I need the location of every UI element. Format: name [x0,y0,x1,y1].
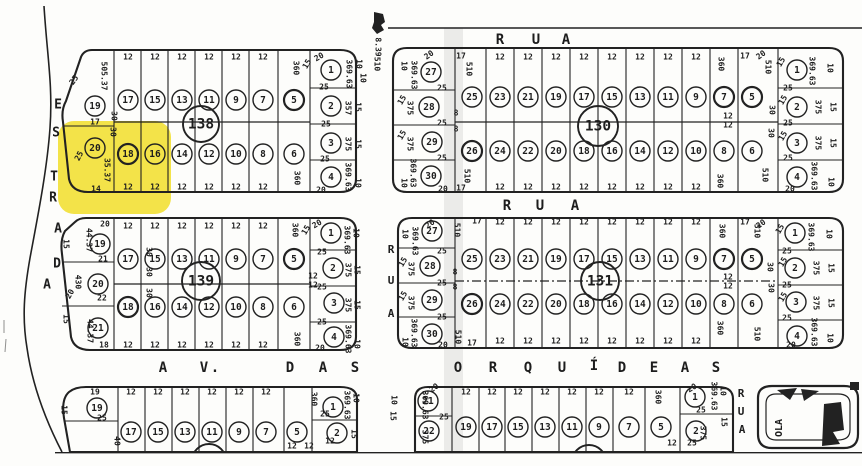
lot-number: 24 [494,146,506,157]
lot-number: 15 [152,427,164,438]
lot-number: 19 [550,254,562,265]
lot-number: 25 [466,92,478,103]
lot-number: 13 [176,254,188,265]
frontage-dim: 12 [495,53,505,62]
frontage-dim: 12 [204,222,214,231]
dimension-label: 17 [456,184,466,193]
dimension-label: 15 [829,138,838,148]
dimension-label: 375 [344,298,353,313]
street-name-estrada: A [43,278,51,293]
dimension-label: 12 [308,272,318,281]
frontage-dim: 12 [204,53,214,62]
frontage-dim: 12 [126,388,136,397]
lot-number: 11 [203,95,215,106]
street-name-av-das-orquideas: A [159,360,168,376]
dimension-label: 30 [766,262,775,272]
lot-number: 1 [794,65,800,76]
dimension-label: 10 [826,63,835,73]
frontage-dim: 12 [231,341,241,350]
dimension-label: 505.37 [100,62,109,91]
lot-number: 16 [149,302,161,313]
street-name-av-das-orquideas: D [286,360,294,376]
lot-number: 13 [539,422,551,433]
lot-number: 16 [606,299,618,310]
dimension-label: 360 [310,392,319,407]
street-name-av-das-orquideas: V [200,360,209,376]
dimension-label: 375 [812,261,821,276]
street-name-rua-vertical-upper: U [388,274,395,287]
street-name-rua-vertical-lower: R [738,387,745,400]
dimension-label: 510 [463,169,472,184]
frontage-dim: 12 [523,183,533,192]
dimension-label: 22 [97,294,107,303]
dimension-label: 15 [353,300,362,310]
dimension-label: 10 [400,178,409,188]
dimension-label: 8 [454,109,459,118]
lot-number: 17 [578,254,589,265]
street-name-av-das-orquideas: S [351,360,359,376]
lot-number: 10 [690,146,702,157]
dimension-label: 25 [782,247,792,256]
lot-number: 9 [236,427,242,438]
lot-number: 19 [460,422,472,433]
dimension-label: 25 [97,414,107,423]
dimension-label: 369.63 [710,382,719,411]
dimension-label: 25 [783,154,793,163]
dimension-label: 21 [98,255,108,264]
dimension-label: 375 [344,263,353,278]
dimension-label: 17 [456,52,466,61]
frontage-dim: 12 [204,341,214,350]
dimension-label: 20 [315,344,325,353]
lot-number: 5 [294,427,300,438]
lot-number: 20 [89,143,101,154]
dimension-label: 510 [373,57,382,72]
frontage-dim: 12 [523,218,533,227]
lot-number: 7 [721,92,727,103]
lot-number: 23 [494,254,506,265]
frontage-dim: 12 [607,218,617,227]
frontage-dim: 12 [691,337,701,346]
dimension-label: 369.63 [344,325,353,354]
frontage-dim: 12 [663,53,673,62]
dimension-label: 15 [389,411,398,421]
street-name-estrada: E [54,98,62,113]
dimension-label: 430 [74,275,83,290]
lot-number: 28 [424,261,436,272]
dimension-label: 10 [401,337,410,347]
street-name-rua-vertical-upper: A [388,307,395,320]
dimension-label: 10 [352,393,361,403]
frontage-dim: 12 [204,183,214,192]
lot-number: 11 [662,254,674,265]
lot-number: 11 [566,422,578,433]
lot-number: 20 [550,299,562,310]
dimension-label: 369.63 [344,163,353,192]
lot-number: 7 [721,254,727,265]
street-name-rua-top: U [532,32,540,48]
frontage-dim: 12 [150,183,160,192]
frontage-dim: 12 [594,388,604,397]
plat-map: 8.39121212121212121212121212171513119751… [0,0,862,466]
lot-number: 16 [606,146,618,157]
dimension-label: 20 [316,186,326,195]
dimension-label: 12 [308,281,318,290]
dimension-label: 12 [723,121,733,130]
dimension-label: 25 [437,313,447,322]
street-name-rua-middle: R [503,198,512,214]
lot-number: 12 [662,299,673,310]
dimension-label: 25 [687,439,697,448]
lot-number: 4 [331,332,337,343]
street-name-rua-middle: A [571,198,580,214]
dimension-label: 10 [355,59,364,69]
lot-number: 5 [291,254,297,265]
lot-number: 17 [125,427,136,438]
dimension-label: 17 [90,118,100,127]
lot-number: 2 [334,428,340,439]
frontage-dim: 12 [579,218,589,227]
dimension-label: 15 [353,265,362,275]
lot-number: 10 [230,302,242,313]
dimension-label: 12 [723,112,733,121]
street-name-av-das-orquideas: U [558,360,566,376]
street-name-av-das-orquideas: A [681,360,690,376]
dimension-label: 360 [717,57,726,72]
lot-number: 12 [203,149,214,160]
street-name-estrada: S [52,126,60,141]
lot-number: 9 [233,254,239,265]
frontage-dim: 12 [231,222,241,231]
frontage-dim: 12 [663,183,673,192]
lot-number: 30 [425,171,437,182]
dimension-label: 375 [407,296,416,311]
lot-number: 1 [328,228,334,239]
dimension-label: 369.63 [409,159,418,188]
frontage-dim: 12 [487,388,497,397]
lot-number: 3 [793,297,799,308]
street-name-av-das-orquideas: Q [524,360,532,376]
dimension-label: 25 [437,119,447,128]
frontage-dim: 12 [207,388,217,397]
dimension-label: 17 [467,339,477,348]
dimension-label: 25 [439,413,449,422]
dimension-label: 25 [317,318,327,327]
lot-number: 20 [550,146,562,157]
block-number: 138 [188,117,214,133]
dimension-label: 30 [768,105,777,115]
lot-number: 18 [122,302,134,313]
lot-number: 29 [426,295,438,306]
lot-number: 8 [260,302,266,313]
street-name-av-das-orquideas: O [454,360,462,376]
lot-number: 2 [794,102,800,113]
street-name-estrada: A [54,222,62,237]
lot-number: 19 [94,239,106,250]
frontage-dim: 12 [691,218,701,227]
dimension-label: 360 [718,224,727,239]
frontage-dim: 12 [551,53,561,62]
dimension-label: 20 [786,341,796,350]
lot-number: 7 [263,427,269,438]
dimension-label: 25 [321,120,331,129]
dimension-label: 375 [406,101,415,116]
lot-number: 6 [749,146,755,157]
frontage-dim: 12 [523,337,533,346]
dimension-label: 10 [352,228,361,238]
lot-number: 16 [149,149,161,160]
dimension-label: 10 [400,61,409,71]
frontage-dim: 12 [567,388,577,397]
frontage-dim: 12 [123,183,133,192]
street-name-rua-vertical-upper: R [388,243,395,256]
lot-number: 8 [721,299,727,310]
dimension-label: 360 [291,223,300,238]
dimension-label: 12 [723,282,733,291]
frontage-dim: 12 [123,53,133,62]
lot-number: 15 [606,92,618,103]
street-name-av-das-orquideas: Í [590,357,598,374]
lot-number: 1 [328,65,334,76]
dimension-label: 369.63 [810,162,819,191]
dimension-label: 12 [667,439,677,448]
dimension-label: 15 [720,417,729,427]
dimension-label: 10 [354,178,363,188]
lot-number: 29 [426,137,438,148]
frontage-dim: 12 [551,183,561,192]
lot-number: 5 [749,254,755,265]
dimension-label: 20 [438,341,448,350]
lot-number: 26 [466,299,478,310]
dimension-label: 10 [826,333,835,343]
block-number: 139 [188,274,214,290]
dimension-label: 375 [407,262,416,277]
scan-shade-band [444,28,463,452]
dimension-label: 360 [293,171,302,186]
dimension-label: 360 [292,61,301,76]
lot-number: 1 [792,228,798,239]
lot-number: 6 [749,299,755,310]
lot-number: 8 [721,146,727,157]
lot-number: 5 [658,422,664,433]
lot-number: 12 [203,302,214,313]
frontage-dim: 12 [495,337,505,346]
dimension-label: 15 [354,139,363,149]
street-name-av-das-orquideas: E [650,360,658,376]
frontage-dim: 12 [150,341,160,350]
dimension-label: 375 [406,137,415,152]
street-name-rua-middle: U [536,198,544,214]
dimension-label: 25 [782,314,792,323]
frontage-dim: 12 [153,388,163,397]
dimension-label: 25 [320,155,330,164]
lot-number: 25 [466,254,478,265]
frontage-dim: 12 [607,53,617,62]
dimension-label: 375 [812,296,821,311]
lot-number: 14 [634,146,646,157]
frontage-dim: 12 [691,53,701,62]
dimension-label: 510 [453,223,462,238]
lot-number: 13 [634,92,646,103]
dimension-label: 375 [421,430,430,445]
dimension-label: 510 [761,168,770,183]
lot-number: 10 [690,299,702,310]
frontage-dim: 12 [177,222,187,231]
lot-number: 3 [328,138,334,149]
frontage-dim: 12 [177,341,187,350]
lot-number: 18 [122,149,134,160]
frontage-dim: 12 [231,53,241,62]
lot-number: 17 [486,422,497,433]
frontage-dim: 12 [177,53,187,62]
frontage-dim: 12 [150,222,160,231]
lot-number: 22 [522,299,533,310]
dimension-label: 25 [317,248,327,257]
street-name-rua-top: R [496,32,505,48]
dimension-label: 25 [696,406,706,415]
frontage-dim: 12 [495,183,505,192]
lot-number: 4 [794,172,800,183]
lot-number: 15 [512,422,524,433]
dimension-label: 30 [109,127,118,137]
dimension-label: 17 [740,52,750,61]
lot-number: 6 [291,149,297,160]
lot-number: 20 [92,279,104,290]
dimension-label: 375 [814,100,823,115]
dimension-label: 12 [723,273,733,282]
lot-number: 28 [423,102,435,113]
lot-number: 7 [626,422,632,433]
dimension-label: 10 [719,386,728,396]
dimension-label: 15 [60,405,69,415]
street-name-av-das-orquideas: R [489,360,498,376]
block-number: 131 [587,274,613,290]
lot-number: 3 [331,298,337,309]
lot-number: 9 [596,422,602,433]
frontage-dim: 12 [258,183,268,192]
lot-number: 1 [330,402,336,413]
dimension-label: 12 [287,442,297,451]
lot-number: 5 [291,95,297,106]
dimension-label: 360 [716,321,725,336]
frontage-dim: 12 [231,183,241,192]
dimension-label: 369.63 [421,391,430,420]
dimension-label: 30 [767,128,776,138]
frontage-dim: 12 [540,388,550,397]
frontage-dim: 12 [551,218,561,227]
street-name-av-das-orquideas: . [211,360,219,376]
lot-number: 12 [662,146,673,157]
dimension-label: 8 [453,283,458,292]
dimension-label: 15 [827,263,836,273]
dimension-label: 44.37 [86,319,95,343]
street-name-partial: OLA [774,419,785,437]
lot-number: 1 [692,392,698,403]
lot-number: 14 [176,302,188,313]
frontage-dim: 12 [663,337,673,346]
dimension-label: 369.63 [343,226,352,255]
frontage-dim: 12 [551,337,561,346]
plat-svg: 8.39121212121212121212121212171513119751… [0,0,862,466]
lot-number: 17 [122,254,133,265]
dimension-label: 369.63 [807,223,816,252]
dimension-label: 15 [354,102,363,112]
dimension-label: 25 [782,281,792,290]
dimension-label: 510 [465,62,474,77]
dimension-label: 369.63 [343,391,352,420]
dimension-label: 8 [453,268,458,277]
frontage-dim: 12 [691,183,701,192]
lot-number: 8 [260,149,266,160]
street-name-estrada: T [50,170,58,185]
dimension-label: 369.63 [410,319,419,348]
dimension-label: 10 [825,229,834,239]
frontage-dim: 12 [258,53,268,62]
frontage-dim: 12 [261,388,271,397]
dimension-label: 25 [437,247,447,256]
dimension-label: 25 [437,84,447,93]
dimension-label: 369.63 [808,57,817,86]
street-name-av-das-orquideas: A [319,360,328,376]
block-number: 130 [585,119,611,135]
frontage-dim: 12 [635,183,645,192]
dimension-label: 14 [91,185,101,194]
lot-number: 7 [260,254,266,265]
dimension-label: 8 [454,125,459,134]
street-name-estrada: D [53,257,61,272]
lot-number: 23 [494,92,506,103]
dimension-label: 510 [764,60,773,75]
dimension-label: 510 [753,327,762,342]
dimension-label: 44.37 [85,228,94,252]
dimension-label: 30 [145,267,154,277]
dimension-label: 10 [353,339,362,349]
dimension-label: 30 [145,247,154,257]
survey-marker-label: 8.39 [374,37,383,56]
lot-number: 10 [230,149,242,160]
dimension-label: 20 [438,185,448,194]
dimension-label: 35.37 [103,158,112,182]
dimension-label: 15 [350,429,359,439]
frontage-dim: 12 [635,337,645,346]
lot-number: 14 [634,299,646,310]
lot-number: 18 [578,299,590,310]
dimension-label: 25 [783,84,793,93]
dimension-label: 25 [317,283,327,292]
dimension-label: 10 [401,229,410,239]
dimension-label: 17 [740,218,750,227]
dimension-label: 375 [814,136,823,151]
dimension-label: 10 [827,177,836,187]
frontage-dim: 12 [523,53,533,62]
lot-number: 19 [550,92,562,103]
frontage-dim: 12 [258,222,268,231]
lot-number: 15 [149,95,161,106]
dimension-label: 40 [113,436,122,446]
lot-number: 5 [749,92,755,103]
scan-mark [850,382,859,390]
street-name-av-das-orquideas: S [712,360,720,376]
dimension-label: 375 [699,426,708,441]
frontage-dim: 12 [150,53,160,62]
dimension-label: 15 [827,298,836,308]
lot-number: 22 [522,146,533,157]
lot-number: 24 [494,299,506,310]
frontage-dim: 12 [258,341,268,350]
lot-number: 2 [328,101,334,112]
lot-number: 9 [693,92,699,103]
lot-number: 14 [176,149,188,160]
